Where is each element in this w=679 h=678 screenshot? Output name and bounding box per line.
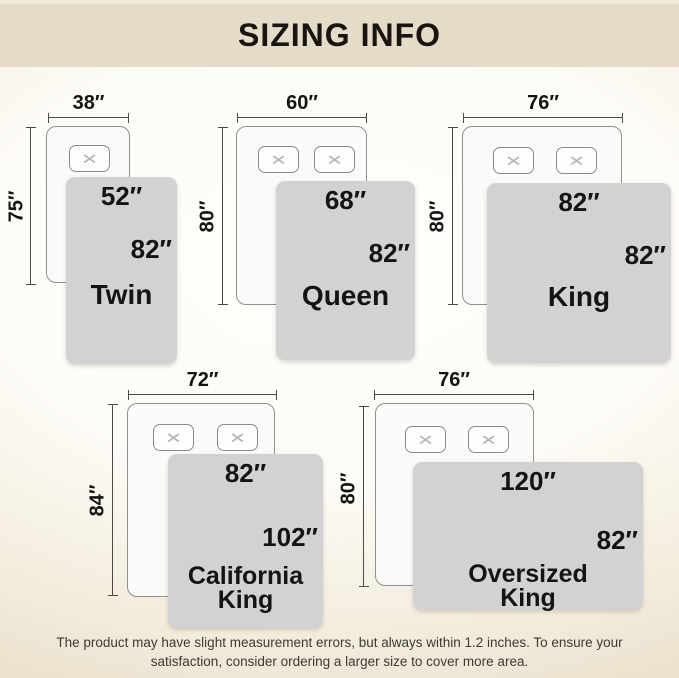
blanket-width-label: 82″	[487, 187, 671, 218]
mattress-height-dimension-line	[30, 127, 31, 285]
blanket-height-label: 82″	[597, 525, 638, 556]
mattress-width-dimension-line	[237, 117, 367, 118]
blanket-size-name: King	[487, 281, 671, 313]
blanket-width-label: 52″	[66, 181, 177, 212]
blanket-size-name: Oversized King	[448, 562, 608, 610]
footer-note: The product may have slight measurement …	[0, 633, 679, 672]
blanket-height-label: 82″	[625, 240, 666, 271]
mattress-height-label: 75″	[6, 185, 29, 229]
mattress-width-dimension-line	[374, 394, 534, 395]
mattress-height-label: 80″	[427, 195, 450, 239]
pillow: ✕	[468, 426, 509, 453]
blanket-width-label: 120″	[413, 466, 643, 497]
pillow: ✕	[69, 145, 110, 172]
footer-note-line2: satisfaction, consider ordering a larger…	[0, 652, 679, 672]
pillow-x-icon: ✕	[326, 152, 343, 166]
blanket-width-label: 68″	[276, 185, 415, 216]
mattress-height-dimension-line	[222, 127, 223, 305]
pillow: ✕	[258, 146, 299, 173]
pillow: ✕	[314, 146, 355, 173]
blanket-height-label: 82″	[131, 234, 172, 265]
blanket-height-label: 82″	[369, 238, 410, 269]
mattress-height-dimension-line	[363, 406, 364, 587]
pillow-x-icon: ✕	[505, 153, 522, 167]
mattress-width-label: 60″	[237, 92, 367, 115]
mattress-width-label: 38″	[48, 92, 129, 115]
blanket: 120″ 82″ Oversized King	[413, 462, 643, 610]
pillow-x-icon: ✕	[81, 151, 98, 165]
pillow: ✕	[153, 424, 194, 451]
blanket-width-label: 82″	[168, 458, 323, 489]
pillow: ✕	[556, 147, 597, 174]
mattress-height-dimension-line	[112, 404, 113, 596]
blanket-size-name: Queen	[276, 280, 415, 312]
mattress-width-label: 72″	[128, 369, 277, 392]
pillow-x-icon: ✕	[417, 432, 434, 446]
header-band: SIZING INFO	[0, 0, 679, 67]
mattress-width-dimension-line	[48, 117, 129, 118]
mattress-width-label: 76″	[374, 369, 534, 392]
blanket: 82″ 82″ King	[487, 183, 671, 363]
blanket-size-name: Twin	[66, 279, 177, 311]
pillow: ✕	[493, 147, 534, 174]
blanket: 52″ 82″ Twin	[66, 177, 177, 364]
mattress-height-label: 80″	[197, 195, 220, 239]
pillow: ✕	[217, 424, 258, 451]
sizing-info-infographic: SIZING INFO 38″ 75″ ✕ 52″ 82″ Twin 60″ 8…	[0, 0, 679, 678]
footer-note-line1: The product may have slight measurement …	[0, 633, 679, 653]
mattress-height-dimension-line	[452, 127, 453, 305]
blanket-size-name: California King	[168, 564, 323, 612]
mattress-height-label: 80″	[338, 467, 361, 511]
pillow-x-icon: ✕	[270, 152, 287, 166]
pillow-x-icon: ✕	[480, 432, 497, 446]
blanket: 82″ 102″ California King	[168, 454, 323, 628]
mattress-width-dimension-line	[463, 117, 623, 118]
page-title: SIZING INFO	[238, 17, 441, 54]
pillow-x-icon: ✕	[568, 153, 585, 167]
blanket: 68″ 82″ Queen	[276, 181, 415, 360]
pillow-x-icon: ✕	[229, 430, 246, 444]
mattress-height-label: 84″	[87, 479, 110, 523]
pillow: ✕	[405, 426, 446, 453]
blanket-height-label: 102″	[262, 522, 318, 553]
mattress-width-label: 76″	[463, 92, 623, 115]
mattress-width-dimension-line	[128, 394, 277, 395]
pillow-x-icon: ✕	[165, 430, 182, 444]
